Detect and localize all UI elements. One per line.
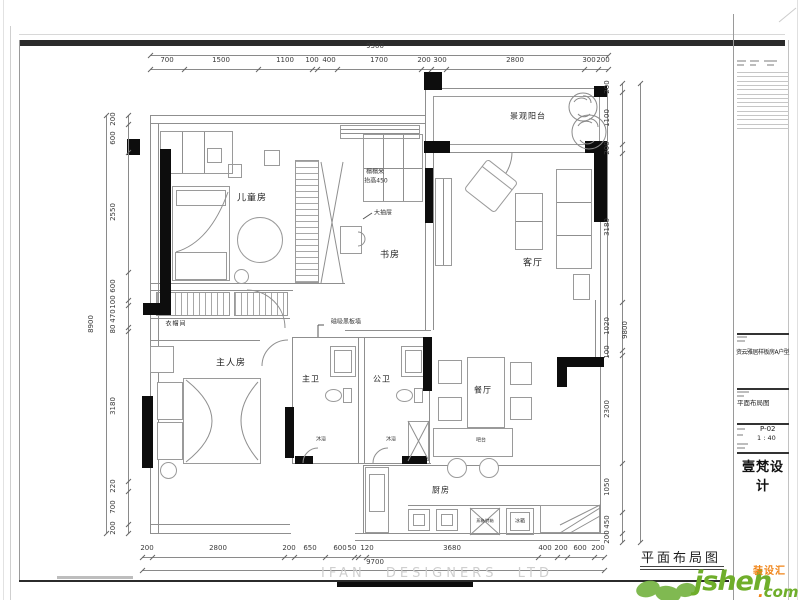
room-label-kids-room: 儿童房 — [237, 191, 267, 204]
revision-table-row — [737, 81, 789, 82]
dim-label: 300 — [582, 56, 595, 64]
room-label-dining-room: 餐厅 — [474, 385, 492, 396]
furniture-outline — [573, 274, 590, 300]
armchair-cushion-line — [482, 166, 512, 189]
dim-label: 200 — [603, 141, 611, 154]
annotation-shower-master: 沐浴 — [316, 436, 326, 443]
furniture-circle — [479, 458, 499, 478]
dim-label: 300 — [433, 56, 446, 64]
furniture-circle — [237, 217, 283, 263]
dim-line — [150, 69, 608, 70]
dim-label: 3180 — [603, 218, 611, 236]
furniture-outline — [540, 505, 600, 533]
section-divider — [737, 452, 789, 454]
sheet-scale: 1 : 40 — [757, 434, 776, 442]
titleblock-drawing-title: 平面布局图 — [737, 397, 770, 407]
revision-table-row — [737, 106, 789, 107]
revision-header-smudge — [750, 60, 759, 62]
page-edge-left — [10, 26, 11, 600]
section-divider — [737, 388, 789, 390]
dim-label: 200 — [603, 80, 611, 93]
furniture-outline — [441, 514, 453, 526]
dim-label: 200 — [596, 56, 609, 64]
floor-plan-sheet: 资云雅居样板房A户型 平面布局图 P-02 1 : 40 壹梵设计 平面布局图 … — [0, 0, 800, 600]
wall-fill — [557, 357, 604, 367]
frame-left — [19, 40, 20, 582]
wall-fill — [423, 337, 432, 391]
dim-label: 1700 — [370, 56, 388, 64]
plan-linework-overlay — [0, 0, 800, 600]
dim-line — [128, 115, 129, 533]
revision-table-row — [737, 72, 789, 73]
wall-line — [355, 540, 600, 541]
dim-label: 600 — [109, 131, 117, 144]
site-logo-tld-text: com — [764, 583, 799, 600]
furniture-outline — [334, 350, 352, 373]
drawing-title-label-smudge — [737, 391, 749, 393]
revision-table-row — [737, 124, 789, 125]
wall-fill — [424, 72, 442, 90]
dim-label: 600 — [109, 279, 117, 292]
door-arc-master-bedroom — [262, 340, 288, 366]
dim-tick — [606, 67, 612, 73]
dim-label: 2800 — [209, 544, 227, 552]
titleblock-left-line — [733, 14, 734, 600]
dim-label: 3180 — [109, 397, 117, 415]
dim-label: 600 — [573, 544, 586, 552]
project-name: 资云雅居样板房A户型 — [736, 347, 792, 356]
dim-tick — [126, 531, 132, 537]
wall-line — [150, 533, 291, 534]
furniture-outline — [175, 252, 227, 280]
furniture-outline — [413, 514, 425, 526]
furniture-outline — [157, 382, 183, 420]
revision-header-smudge — [767, 64, 774, 66]
annotation-magnetic-blackboard-wall: 磁吸黑板墙 — [331, 317, 361, 326]
revision-header-smudge — [764, 60, 777, 62]
dim-label: 200 — [282, 544, 295, 552]
dim-tick — [602, 568, 608, 574]
furniture-outline — [414, 388, 423, 403]
revision-table-row — [737, 119, 789, 120]
wall-line — [425, 152, 608, 153]
dim-label: 400 — [538, 544, 551, 552]
furniture-circle — [234, 269, 249, 284]
dim-label: 450 — [603, 515, 611, 528]
dim-label: 3680 — [443, 544, 461, 552]
furniture-outline — [510, 362, 532, 385]
wall-line — [293, 283, 345, 284]
revision-header-smudge — [737, 64, 744, 66]
page-edge-right — [797, 0, 798, 600]
wall-line — [337, 115, 425, 116]
revision-table-row — [737, 89, 789, 90]
dim-label: 700 — [109, 500, 117, 513]
wall-fill — [285, 407, 294, 458]
furniture-outline — [340, 226, 362, 254]
revision-header-smudge — [750, 64, 756, 66]
furniture-outline — [183, 378, 261, 464]
dim-tick — [620, 540, 626, 546]
wall-fill — [402, 456, 427, 464]
revision-table-row — [737, 128, 789, 129]
closet-hatch — [234, 292, 288, 316]
furniture-outline — [515, 193, 543, 250]
room-label-balcony: 景观阳台 — [510, 111, 546, 122]
furniture-outline — [405, 350, 422, 373]
dim-label: 1050 — [603, 478, 611, 496]
wall-line — [358, 337, 359, 463]
revision-table-row — [737, 98, 789, 99]
dim-line — [640, 83, 641, 542]
wardrobe-hatch — [295, 160, 319, 283]
frame-top-thin — [19, 34, 785, 35]
annotation-tatami-height: 抬高450 — [364, 176, 387, 185]
room-label-master-bedroom: 主人房 — [216, 356, 246, 369]
site-logo-tld: .com — [758, 583, 799, 600]
revision-table-row — [737, 102, 789, 103]
furniture-outline — [556, 169, 592, 269]
drawing-label: 平面布局图 — [641, 547, 721, 566]
dim-label: 470 — [109, 309, 117, 322]
armchair — [464, 159, 517, 212]
dim-label: 200 — [140, 544, 153, 552]
dim-label: 2300 — [603, 400, 611, 418]
dim-label: 2550 — [109, 203, 117, 221]
dim-label: 200 — [109, 112, 117, 125]
furniture-outline — [433, 428, 513, 457]
room-label-kitchen: 厨房 — [432, 485, 450, 496]
project-label-smudge — [737, 336, 747, 338]
wall-line — [150, 290, 293, 291]
furniture-circle — [160, 462, 177, 479]
dim-label: 100 — [109, 295, 117, 308]
annotation-bar-counter: 吧台 — [476, 437, 486, 444]
furniture-outline — [176, 190, 226, 206]
dim-label: 650 — [303, 544, 316, 552]
leader-blackboard-wall — [318, 325, 324, 337]
furniture-outline — [438, 360, 462, 384]
dim-label: 120 — [360, 544, 373, 552]
footer-accent-bar — [337, 582, 473, 587]
room-label-cloakroom: 衣帽间 — [165, 319, 186, 328]
cross-braced-column — [321, 162, 343, 283]
wall-fill — [557, 367, 567, 387]
dim-label: 220 — [109, 479, 117, 492]
revision-header-smudge — [737, 60, 746, 62]
room-label-public-bath: 公卫 — [373, 374, 391, 385]
company-name: 壹梵设计 — [736, 456, 790, 494]
watermark: IFAN DESIGNERS LTD — [321, 566, 553, 581]
annotation-tatami: 榻榻米 — [366, 167, 384, 176]
room-label-study: 书房 — [380, 248, 400, 261]
dim-label: 1020 — [603, 317, 611, 335]
dim-label: 1100 — [603, 109, 611, 127]
leader-big-drawer — [363, 213, 372, 219]
furniture-outline — [438, 397, 462, 421]
sheet-number: P-02 — [760, 425, 776, 433]
furniture-outline — [369, 474, 385, 512]
dim-label: 50 — [348, 544, 357, 552]
wall-line — [595, 300, 596, 358]
footer-fineprint-smudge — [57, 576, 133, 579]
wall-line — [150, 283, 293, 284]
logo-leaf — [654, 584, 682, 600]
wall-line — [150, 115, 151, 534]
toilet-bowl — [396, 389, 413, 402]
wall-fill — [425, 168, 433, 223]
toilet-bowl — [325, 389, 342, 402]
annotation-shower-public: 沐浴 — [386, 436, 396, 443]
frame-top-bar — [19, 40, 785, 46]
dim-label: 80 — [109, 325, 117, 334]
door-arc-public-bath — [373, 448, 388, 463]
dim-label: 9800 — [621, 321, 629, 339]
wall-line — [425, 88, 608, 89]
room-label-living-room: 客厅 — [523, 256, 543, 269]
sheet-label-smudge — [737, 443, 748, 445]
dim-label: 2800 — [506, 56, 524, 64]
wall-line — [337, 123, 425, 124]
annotation-steam-oven: 蒸箱/烤箱 — [476, 518, 493, 524]
wall-fill — [594, 150, 607, 222]
wall-fill — [160, 149, 171, 310]
dim-label: 1500 — [212, 56, 230, 64]
wall-line — [600, 367, 601, 533]
dim-label: 200 — [417, 56, 430, 64]
page-corner-mark — [779, 8, 796, 22]
wall-line — [292, 337, 431, 338]
dim-label: 1100 — [276, 56, 294, 64]
dim-line — [106, 115, 107, 533]
wall-line — [363, 465, 364, 534]
furniture-outline — [510, 397, 532, 420]
dim-label: 100 — [305, 56, 318, 64]
wall-line — [345, 330, 431, 331]
revision-table-row — [737, 85, 789, 86]
wall-line — [433, 152, 434, 330]
wall-fill — [142, 396, 153, 468]
sheet-label-smudge — [737, 434, 743, 436]
revision-table-row — [737, 76, 789, 77]
sheet-label-smudge — [737, 447, 745, 449]
dim-label: 200 — [603, 530, 611, 543]
furniture-outline — [435, 178, 452, 266]
annotation-big-drawer: 大抽屉 — [374, 208, 392, 217]
dim-label: 600 — [333, 544, 346, 552]
furniture-outline — [408, 421, 429, 461]
site-logo-tagline: 装设汇 — [753, 562, 786, 577]
wall-line — [158, 123, 159, 533]
furniture-outline — [343, 388, 352, 403]
section-divider — [737, 333, 789, 335]
wall-line — [150, 340, 260, 341]
dim-label: 200 — [109, 521, 117, 534]
annotation-fridge: 冰箱 — [515, 518, 525, 525]
revision-table-row — [737, 111, 789, 112]
door-arc-balcony — [472, 152, 512, 192]
dim-label: 200 — [591, 544, 604, 552]
dim-label: 400 — [322, 56, 335, 64]
furniture-outline — [150, 346, 174, 373]
project-label-smudge — [737, 340, 745, 342]
dim-label: 9300 — [366, 42, 384, 50]
page-edge-left-outer — [3, 0, 4, 600]
wall-line — [150, 524, 290, 525]
room-label-master-bath: 主卫 — [302, 374, 320, 385]
sheet-label-smudge — [737, 428, 745, 430]
wall-fill — [295, 456, 313, 464]
dim-label: 700 — [160, 56, 173, 64]
dim-label: 8900 — [87, 315, 95, 333]
dim-tick — [638, 540, 644, 546]
wall-fill — [143, 303, 171, 315]
furniture-circle — [447, 458, 467, 478]
wall-line — [364, 337, 365, 463]
furniture-outline — [157, 422, 183, 460]
furniture-outline — [264, 150, 280, 166]
wall-fill — [424, 141, 450, 153]
revision-table-row — [737, 115, 789, 116]
revision-table-row — [737, 94, 789, 95]
dim-label: 100 — [603, 345, 611, 358]
dim-label: 200 — [554, 544, 567, 552]
dim-label: 9700 — [366, 558, 384, 566]
dim-tick — [602, 555, 608, 561]
